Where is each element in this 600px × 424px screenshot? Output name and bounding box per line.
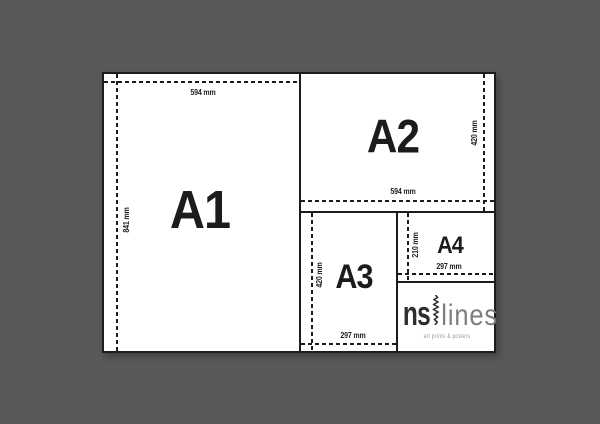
a3-height-dashline (311, 213, 313, 351)
a1-height-dimension: 841 mm (123, 207, 131, 232)
a1-width-dashline (104, 81, 301, 83)
a3-width-dimension: 297 mm (340, 332, 365, 340)
brand-logo: ns lines (392, 295, 507, 331)
panel-a4-label: A4 (437, 234, 463, 258)
a2-height-dashline (483, 74, 485, 211)
a2-width-dashline (301, 200, 494, 202)
a4-height-dashline (407, 213, 409, 281)
panel-a1-label: A1 (170, 183, 230, 237)
paper-size-diagram-sheet: 594 mm 841 mm A1 594 mm 420 mm A2 297 mm… (102, 72, 496, 353)
a2-height-dimension: 420 mm (471, 120, 479, 145)
a1-width-dimension: 594 mm (190, 89, 215, 97)
a1-height-dashline (116, 74, 118, 351)
panel-a2-label: A2 (367, 113, 419, 160)
brand-name-lines: lines (441, 301, 498, 331)
divider-a4-bottom (396, 281, 494, 283)
a2-width-dimension: 594 mm (390, 188, 415, 196)
brand-tagline: art prints & posters (424, 334, 471, 340)
poster-background: 594 mm 841 mm A1 594 mm 420 mm A2 297 mm… (0, 0, 600, 424)
a3-width-dashline (301, 343, 396, 345)
a4-width-dashline (398, 273, 494, 275)
panel-a3-label: A3 (335, 260, 372, 294)
brand-name-ns: ns (403, 297, 430, 331)
brush-stroke-icon (431, 295, 440, 325)
a4-height-dimension: 210 mm (412, 232, 420, 257)
a4-width-dimension: 297 mm (436, 263, 461, 271)
a3-height-dimension: 420 mm (316, 262, 324, 287)
